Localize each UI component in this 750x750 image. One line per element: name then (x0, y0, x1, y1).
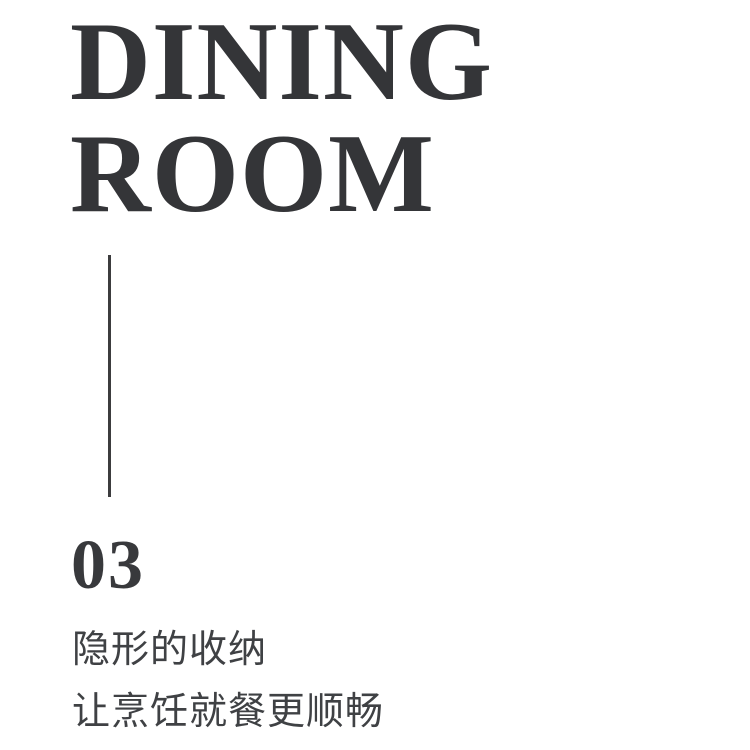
section-header-slide: DINING ROOM 03 隐形的收纳 让烹饪就餐更顺畅 (0, 0, 750, 750)
subtitle-line-2: 让烹饪就餐更顺畅 (72, 693, 384, 731)
page-title-line-1: DINING (70, 6, 493, 118)
section-number: 03 (71, 531, 145, 601)
subtitle-line-1: 隐形的收纳 (72, 631, 267, 669)
page-title: DINING ROOM (70, 6, 493, 230)
page-title-line-2: ROOM (70, 118, 493, 230)
vertical-divider-line (108, 255, 111, 497)
